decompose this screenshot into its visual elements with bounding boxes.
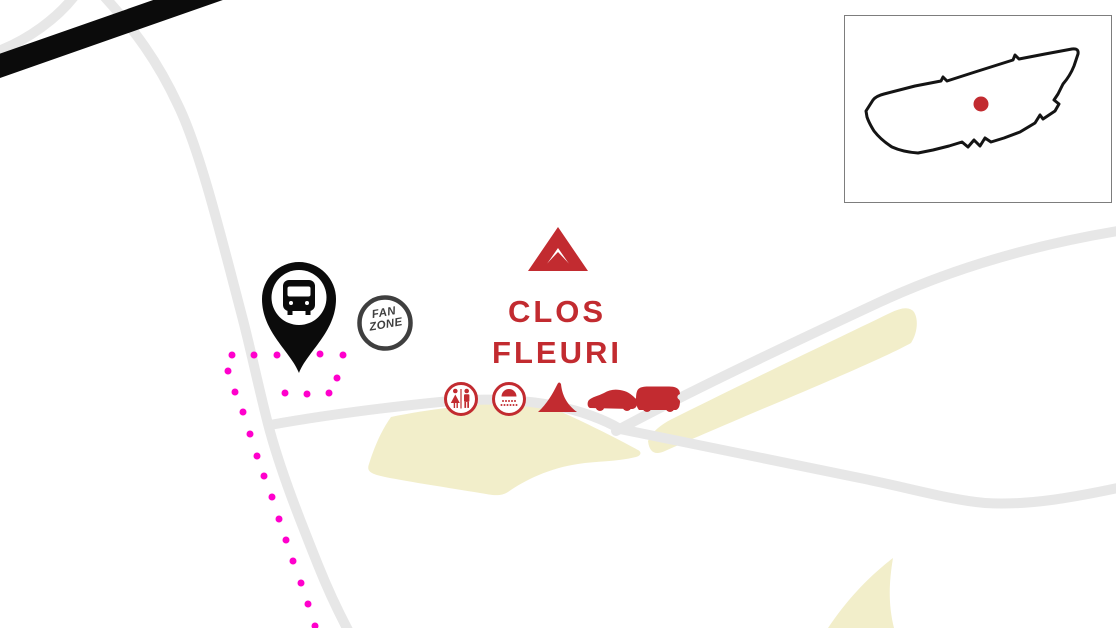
field-bottom-sail	[828, 558, 894, 628]
field-right-strip	[648, 308, 917, 453]
inset-map	[844, 15, 1112, 203]
site-name-line1: CLOS	[437, 291, 677, 332]
site-name-label: CLOS FLEURI	[437, 291, 677, 373]
bus-stop-pin	[262, 262, 336, 373]
road-southeast	[620, 429, 1116, 504]
car-icon	[588, 390, 638, 411]
event-site-map: CLOS FLEURI FAN ZONE	[0, 0, 1116, 628]
inset-canvas	[845, 16, 1110, 201]
toilets-icon	[446, 384, 477, 415]
shower-icon	[494, 384, 525, 415]
tent-icon	[538, 382, 577, 412]
campsite-logo-icon	[528, 227, 588, 271]
location-dot	[974, 97, 989, 112]
bus-icon	[283, 280, 315, 315]
site-name-line2: FLEURI	[437, 332, 677, 373]
camper-van-icon	[636, 387, 680, 413]
boundary-outline	[866, 49, 1078, 153]
